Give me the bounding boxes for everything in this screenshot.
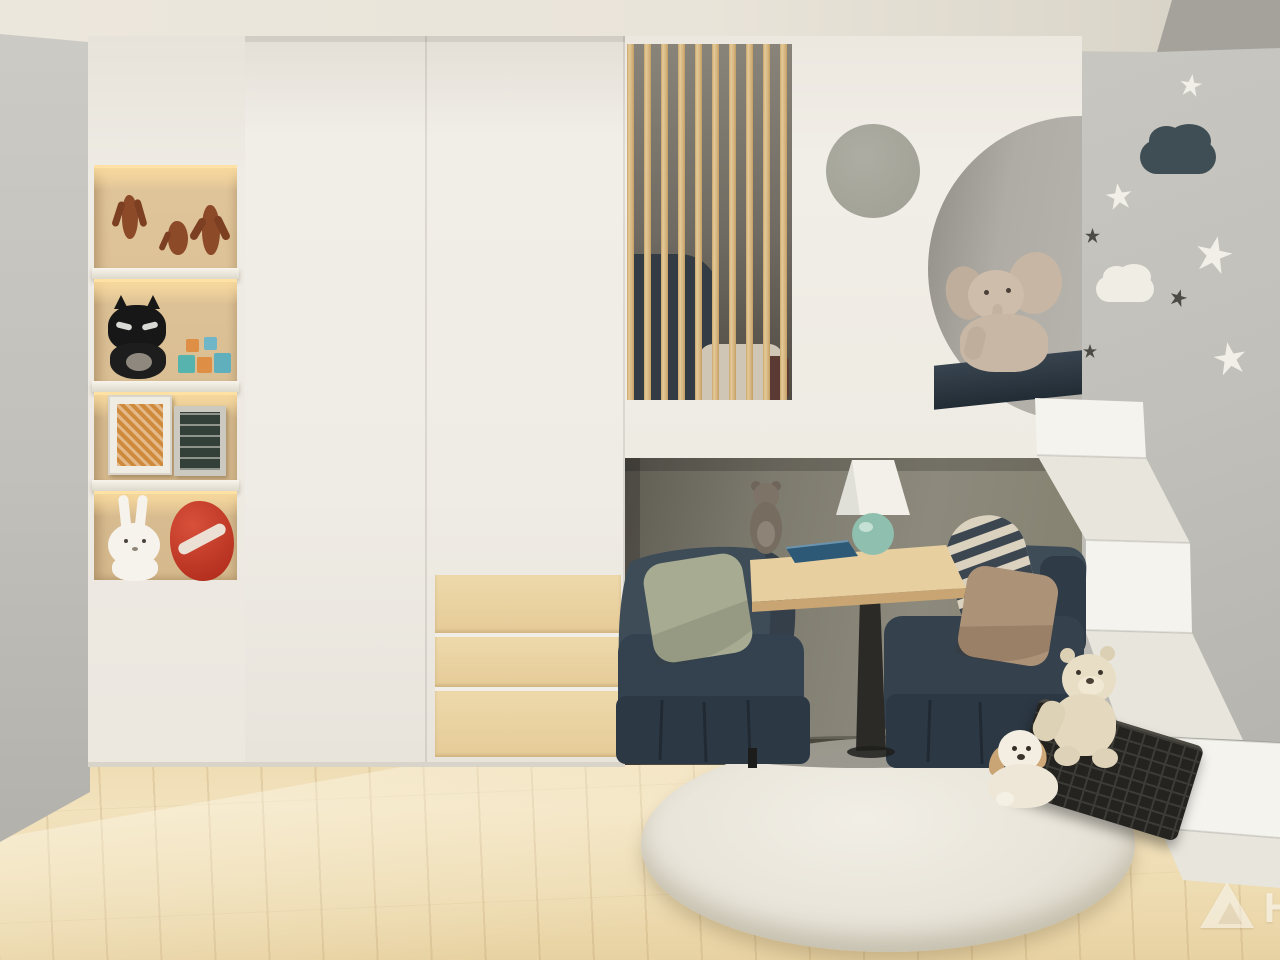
brand-letter: H xyxy=(1264,884,1280,932)
brand-watermark: H xyxy=(1192,868,1280,952)
sofa-leg xyxy=(748,748,757,768)
furniture-overlay xyxy=(0,0,1280,960)
brand-logo-icon-inner xyxy=(1218,902,1242,924)
bear-figurine xyxy=(750,481,782,554)
lamp-base xyxy=(852,513,894,555)
desk-leg xyxy=(856,596,886,751)
green-pillow xyxy=(641,551,756,668)
dog-plush xyxy=(982,726,1066,810)
kids-room-render: H xyxy=(0,0,1280,960)
